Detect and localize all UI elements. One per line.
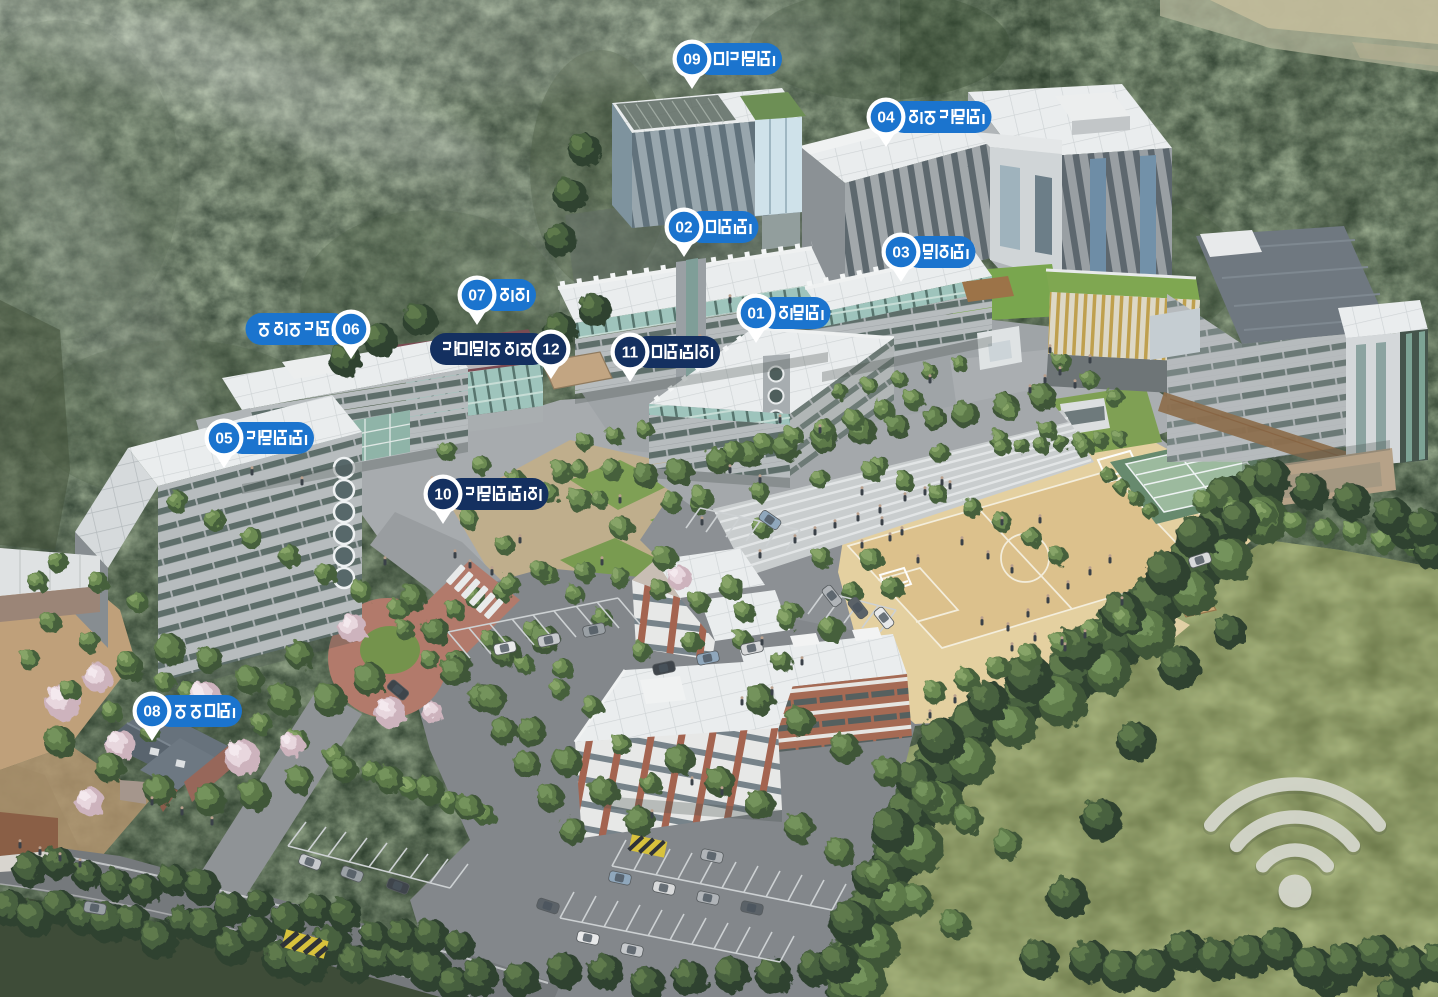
svg-text:07: 07 — [468, 288, 485, 305]
svg-text:04: 04 — [877, 110, 895, 127]
svg-text:05: 05 — [215, 431, 233, 448]
svg-text:11: 11 — [622, 345, 639, 362]
svg-text:09: 09 — [683, 52, 701, 69]
svg-text:12: 12 — [542, 342, 559, 359]
svg-text:06: 06 — [342, 322, 360, 339]
svg-text:02: 02 — [675, 220, 692, 237]
svg-text:08: 08 — [143, 704, 161, 721]
svg-text:03: 03 — [892, 245, 910, 262]
svg-text:10: 10 — [434, 487, 451, 504]
svg-text:01: 01 — [747, 306, 765, 323]
